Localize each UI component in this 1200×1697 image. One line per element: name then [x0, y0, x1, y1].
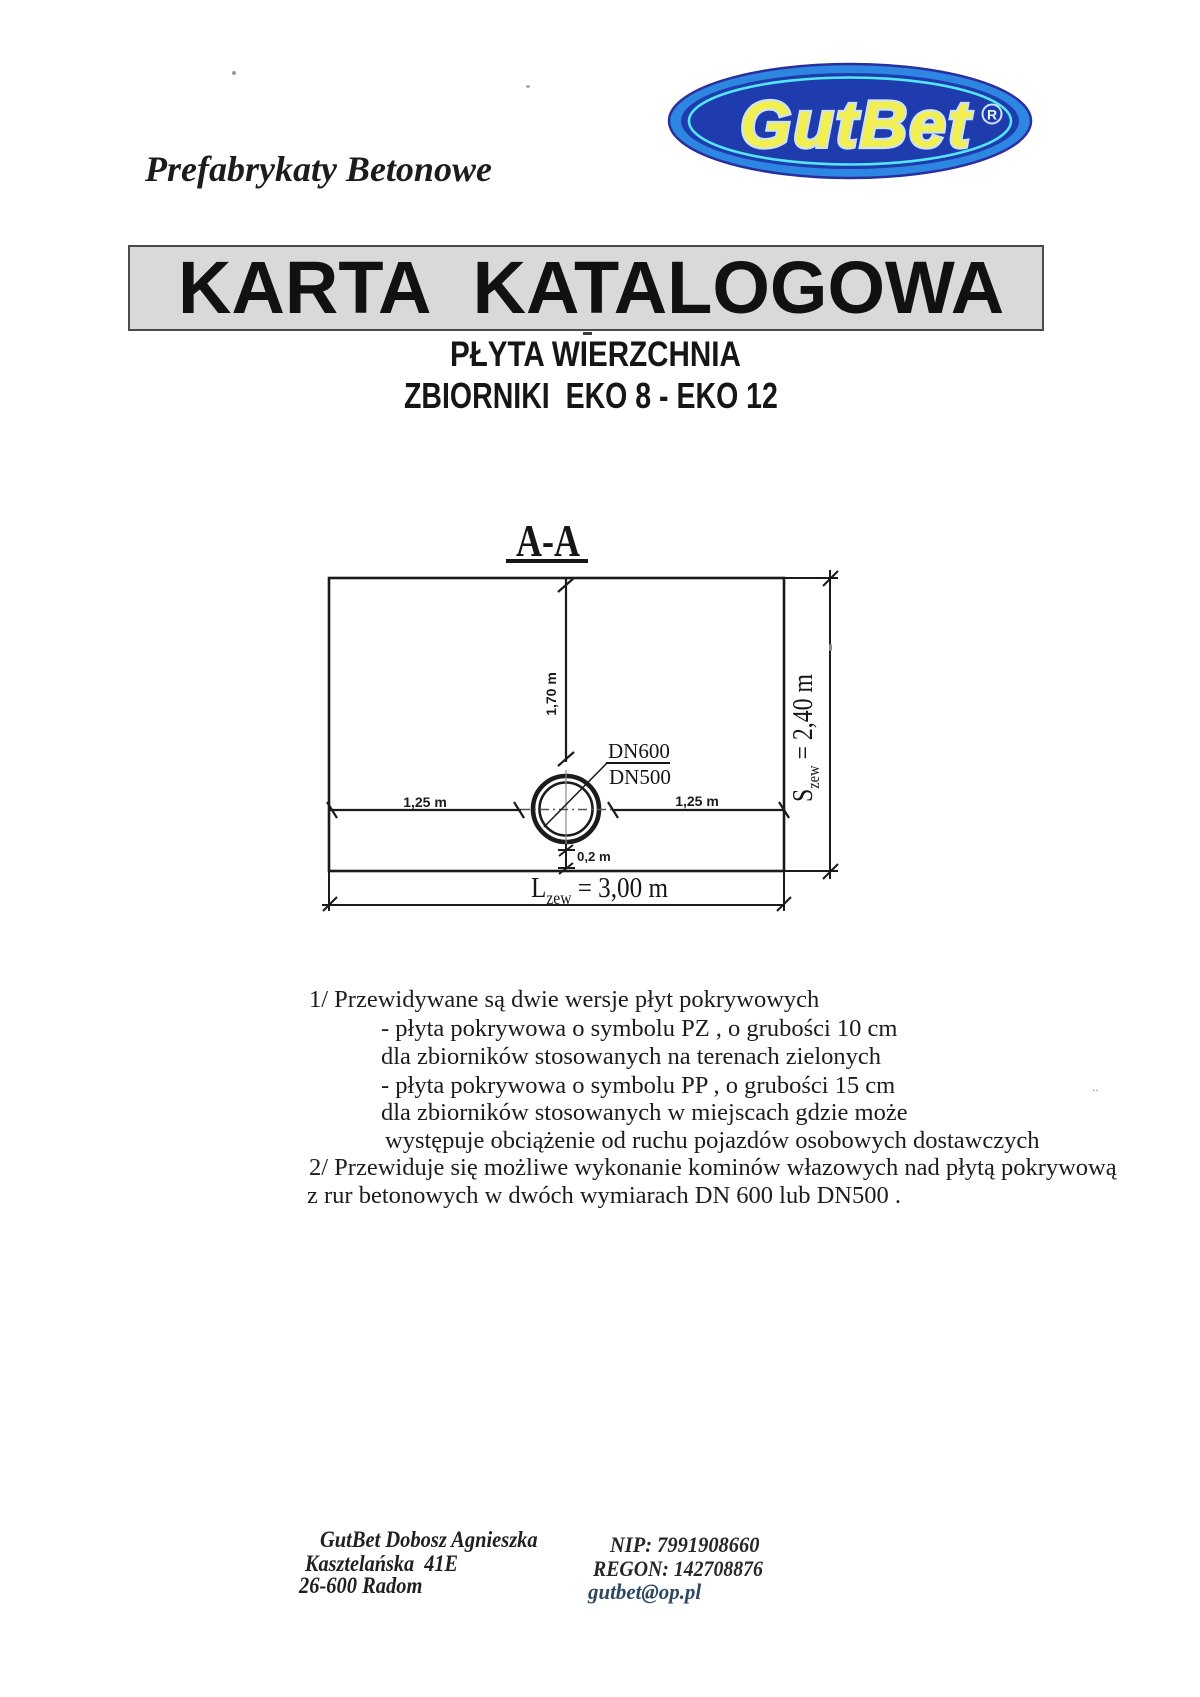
svg-text:0,2 m: 0,2 m [577, 849, 611, 864]
svg-text:DN500: DN500 [609, 765, 671, 789]
svg-text:DN600: DN600 [608, 739, 670, 763]
svg-text:Szew = 2,40 m: Szew = 2,40 m [788, 674, 823, 802]
svg-text:1,25 m: 1,25 m [403, 794, 447, 810]
svg-text:Lzew = 3,00 m: Lzew = 3,00 m [531, 872, 668, 908]
svg-text:1,70 m: 1,70 m [543, 672, 559, 716]
svg-text:1,25 m: 1,25 m [675, 793, 719, 809]
svg-text:A-A: A-A [516, 516, 580, 566]
